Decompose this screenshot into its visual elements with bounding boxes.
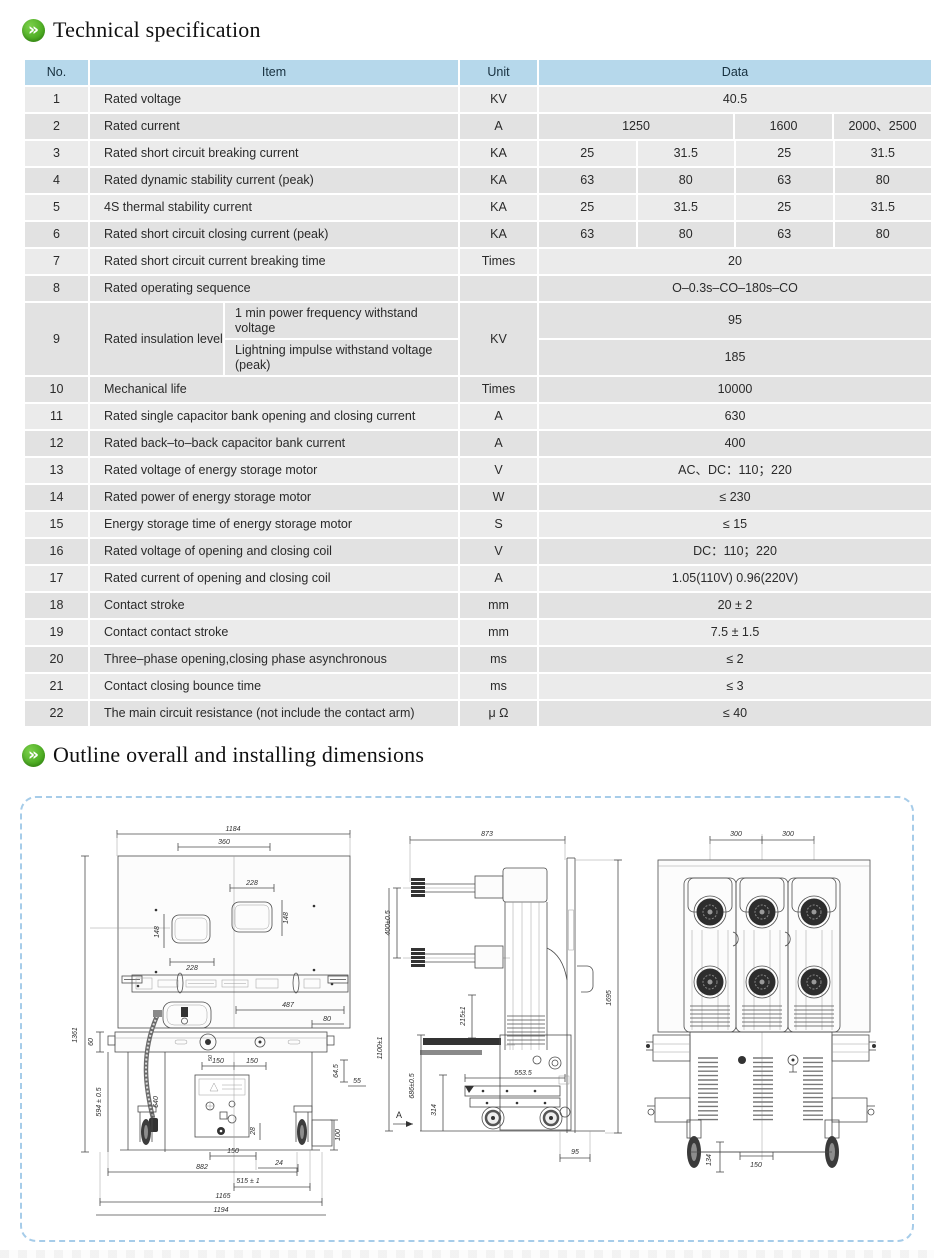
cell-unit: KV bbox=[460, 303, 537, 375]
cell-unit: KA bbox=[460, 141, 537, 166]
dimension-label: 150 bbox=[246, 1058, 258, 1065]
cell-data: AC、DC：110；220 bbox=[539, 458, 931, 483]
rear-view-drawing: 300 300 bbox=[645, 820, 934, 1175]
cell-item: Rated current of opening and closing coi… bbox=[90, 566, 458, 591]
dimension-label: 1695 bbox=[606, 990, 613, 1006]
ventilation-slats bbox=[698, 1058, 823, 1120]
dimension-label: 24 bbox=[274, 1160, 283, 1167]
dimension-label: 148 bbox=[283, 912, 290, 924]
cell-data: 25 bbox=[539, 195, 636, 220]
cell-data: 80 bbox=[835, 168, 932, 193]
dimension-label: 360 bbox=[218, 839, 230, 846]
cell-no: 18 bbox=[25, 593, 88, 618]
cell-no: 19 bbox=[25, 620, 88, 645]
cell-no: 6 bbox=[25, 222, 88, 247]
dimension-label: 300 bbox=[782, 831, 794, 838]
dimension-label: 215±1 bbox=[460, 1006, 467, 1027]
cell-unit: Times bbox=[460, 249, 537, 274]
cell-data: 80 bbox=[835, 222, 932, 247]
cell-data: ≤ 230 bbox=[539, 485, 931, 510]
cell-data: 31.5 bbox=[638, 195, 735, 220]
cell-item: Energy storage time of energy storage mo… bbox=[90, 512, 458, 537]
dimension-label: 150 bbox=[750, 1162, 762, 1169]
double-chevron-icon: » bbox=[22, 744, 45, 767]
dimension-label: 28 bbox=[250, 1127, 257, 1136]
cell-data: 1250 bbox=[539, 114, 733, 139]
cell-item: Rated dynamic stability current (peak) bbox=[90, 168, 458, 193]
cell-data: 25 bbox=[539, 141, 636, 166]
cell-no: 16 bbox=[25, 539, 88, 564]
cell-unit: V bbox=[460, 458, 537, 483]
cell-unit: S bbox=[460, 512, 537, 537]
dimension-label: 148 bbox=[154, 926, 161, 938]
cell-data: 20 bbox=[539, 249, 931, 274]
table-row: 5 4S thermal stability current KA 25 31.… bbox=[25, 195, 931, 220]
cell-data: 630 bbox=[539, 404, 931, 429]
dimension-label: 95 bbox=[571, 1149, 579, 1156]
cell-unit: Times bbox=[460, 377, 537, 402]
dimension-label: 1361 bbox=[72, 1027, 79, 1043]
cell-item: Rated single capacitor bank opening and … bbox=[90, 404, 458, 429]
cell-data: 31.5 bbox=[835, 141, 932, 166]
dimension-label: 873 bbox=[481, 831, 493, 838]
col-header-item: Item bbox=[90, 60, 458, 85]
cell-unit: A bbox=[460, 566, 537, 591]
cell-data: O–0.3s–CO–180s–CO bbox=[539, 276, 931, 301]
cell-no: 12 bbox=[25, 431, 88, 456]
dimension-label: 64.5 bbox=[333, 1064, 340, 1078]
table-row: 4 Rated dynamic stability current (peak)… bbox=[25, 168, 931, 193]
cell-data: 25 bbox=[736, 195, 833, 220]
table-row: 8 Rated operating sequence O–0.3s–CO–180… bbox=[25, 276, 931, 301]
cell-unit: KA bbox=[460, 195, 537, 220]
cell-item: The main circuit resistance (not include… bbox=[90, 701, 458, 726]
cell-no: 7 bbox=[25, 249, 88, 274]
dimension-label: 228 bbox=[245, 880, 258, 887]
dimension-label: 1194 bbox=[213, 1207, 228, 1214]
cell-sub-item: Lightning impulse withstand voltage (pea… bbox=[225, 340, 458, 375]
cell-no: 2 bbox=[25, 114, 88, 139]
dimension-label: 553.5 bbox=[514, 1070, 532, 1077]
cell-unit: W bbox=[460, 485, 537, 510]
dimension-label: 100 bbox=[335, 1129, 342, 1141]
dimension-label: 1184 bbox=[225, 826, 240, 833]
table-row-insulation-level: 9 Rated insulation level 1 min power fre… bbox=[25, 303, 931, 375]
cell-data: 63 bbox=[736, 222, 833, 247]
cell-data: ≤ 15 bbox=[539, 512, 931, 537]
dimension-label: 686±0.5 bbox=[409, 1073, 416, 1098]
cell-no: 3 bbox=[25, 141, 88, 166]
cell-unit: ms bbox=[460, 647, 537, 672]
cell-item: Rated insulation level bbox=[90, 303, 223, 375]
cell-item: Contact stroke bbox=[90, 593, 458, 618]
front-view-drawing: 1184 360 228 148 148 228 487 80 bbox=[60, 820, 370, 1217]
table-row: 10 Mechanical life Times 10000 bbox=[25, 377, 931, 402]
table-row: 16 Rated voltage of opening and closing … bbox=[25, 539, 931, 564]
cell-no: 10 bbox=[25, 377, 88, 402]
cell-unit: μ Ω bbox=[460, 701, 537, 726]
cell-data: 31.5 bbox=[638, 141, 735, 166]
page-title: Technical specification bbox=[53, 17, 261, 43]
dimension-label: 314 bbox=[431, 1104, 438, 1116]
cell-data: 1600 bbox=[735, 114, 832, 139]
table-row: 13 Rated voltage of energy storage motor… bbox=[25, 458, 931, 483]
cell-no: 20 bbox=[25, 647, 88, 672]
cell-no: 1 bbox=[25, 87, 88, 112]
cell-item: Three–phase opening,closing phase asynch… bbox=[90, 647, 458, 672]
cell-item: Rated voltage of opening and closing coi… bbox=[90, 539, 458, 564]
cell-unit: A bbox=[460, 431, 537, 456]
cell-item: Rated back–to–back capacitor bank curren… bbox=[90, 431, 458, 456]
cell-unit: mm bbox=[460, 620, 537, 645]
col-header-unit: Unit bbox=[460, 60, 537, 85]
table-row: 6 Rated short circuit closing current (p… bbox=[25, 222, 931, 247]
cell-data: 95 bbox=[539, 303, 931, 338]
cell-item: Rated voltage of energy storage motor bbox=[90, 458, 458, 483]
cell-no: 21 bbox=[25, 674, 88, 699]
cell-item: Contact contact stroke bbox=[90, 620, 458, 645]
cell-data: ≤ 40 bbox=[539, 701, 931, 726]
cell-data: 80 bbox=[638, 168, 735, 193]
spec-table: No. Item Unit Data 1 Rated voltage KV 40… bbox=[25, 60, 931, 728]
table-row: 7 Rated short circuit current breaking t… bbox=[25, 249, 931, 274]
cell-no: 9 bbox=[25, 303, 88, 375]
table-row: 17 Rated current of opening and closing … bbox=[25, 566, 931, 591]
cell-no: 17 bbox=[25, 566, 88, 591]
cell-unit: mm bbox=[460, 593, 537, 618]
cell-data: 63 bbox=[539, 168, 636, 193]
dimension-label: 150 bbox=[227, 1148, 239, 1155]
table-header-row: No. Item Unit Data bbox=[25, 60, 931, 85]
cell-sub-item: 1 min power frequency withstand voltage bbox=[225, 303, 458, 338]
cell-no: 8 bbox=[25, 276, 88, 301]
cell-data: 20 ± 2 bbox=[539, 593, 931, 618]
dimension-label: 487 bbox=[282, 1002, 295, 1009]
dimension-label: 80 bbox=[323, 1016, 331, 1023]
dimension-label: 882 bbox=[196, 1164, 208, 1171]
cell-item: 4S thermal stability current bbox=[90, 195, 458, 220]
col-header-no: No. bbox=[25, 60, 88, 85]
cell-item: Rated short circuit current breaking tim… bbox=[90, 249, 458, 274]
table-row: 2 Rated current A 1250 1600 2000、2500 bbox=[25, 114, 931, 139]
cell-data: 10000 bbox=[539, 377, 931, 402]
cell-data: 63 bbox=[736, 168, 833, 193]
table-row: 21 Contact closing bounce time ms ≤ 3 bbox=[25, 674, 931, 699]
table-row: 14 Rated power of energy storage motor W… bbox=[25, 485, 931, 510]
section-heading-outline-dimensions: » Outline overall and installing dimensi… bbox=[22, 742, 424, 768]
table-row: 19 Contact contact stroke mm 7.5 ± 1.5 bbox=[25, 620, 931, 645]
cell-unit: A bbox=[460, 114, 537, 139]
cell-data: 31.5 bbox=[835, 195, 932, 220]
dimension-label: 515 ± 1 bbox=[236, 1178, 259, 1185]
section-title: Outline overall and installing dimension… bbox=[53, 742, 424, 768]
cell-data: 7.5 ± 1.5 bbox=[539, 620, 931, 645]
cell-unit: V bbox=[460, 539, 537, 564]
dimension-label: 60 bbox=[88, 1038, 95, 1046]
cell-no: 14 bbox=[25, 485, 88, 510]
cell-no: 22 bbox=[25, 701, 88, 726]
cell-data: 40.5 bbox=[539, 87, 931, 112]
next-section-edge bbox=[0, 1250, 934, 1258]
cell-unit: KA bbox=[460, 168, 537, 193]
cell-no: 4 bbox=[25, 168, 88, 193]
cell-data: DC：110；220 bbox=[539, 539, 931, 564]
dimension-label: 228 bbox=[185, 965, 198, 972]
cell-item: Contact closing bounce time bbox=[90, 674, 458, 699]
table-row: 15 Energy storage time of energy storage… bbox=[25, 512, 931, 537]
cell-data: 25 bbox=[736, 141, 833, 166]
table-row: 22 The main circuit resistance (not incl… bbox=[25, 701, 931, 726]
cell-data: ≤ 3 bbox=[539, 674, 931, 699]
cell-item: Mechanical life bbox=[90, 377, 458, 402]
cell-item: Rated short circuit closing current (pea… bbox=[90, 222, 458, 247]
section-heading-technical-specification: » Technical specification bbox=[22, 17, 261, 43]
table-row: 11 Rated single capacitor bank opening a… bbox=[25, 404, 931, 429]
cell-no: 15 bbox=[25, 512, 88, 537]
section-arrow-label: A bbox=[396, 1110, 402, 1120]
cell-unit: KA bbox=[460, 222, 537, 247]
cell-no: 13 bbox=[25, 458, 88, 483]
table-row: 18 Contact stroke mm 20 ± 2 bbox=[25, 593, 931, 618]
table-row: 12 Rated back–to–back capacitor bank cur… bbox=[25, 431, 931, 456]
dimension-label: 300 bbox=[730, 831, 742, 838]
cell-item: Rated operating sequence bbox=[90, 276, 458, 301]
cell-unit: A bbox=[460, 404, 537, 429]
cell-data: 400 bbox=[539, 431, 931, 456]
cell-data: 2000、2500 bbox=[834, 114, 931, 139]
cell-data: 80 bbox=[638, 222, 735, 247]
cell-no: 5 bbox=[25, 195, 88, 220]
dimension-label: 55 bbox=[353, 1078, 361, 1085]
cell-data: 1.05(110V) 0.96(220V) bbox=[539, 566, 931, 591]
cell-item: Rated voltage bbox=[90, 87, 458, 112]
dimension-label: 1165 bbox=[215, 1193, 230, 1200]
cell-no: 11 bbox=[25, 404, 88, 429]
cell-data: 63 bbox=[539, 222, 636, 247]
dimension-label: 1100±1 bbox=[377, 1037, 384, 1060]
dimension-label: 134 bbox=[706, 1154, 713, 1166]
double-chevron-icon: » bbox=[22, 19, 45, 42]
table-row: 1 Rated voltage KV 40.5 bbox=[25, 87, 931, 112]
catalog-page: » Technical specification No. Item Unit … bbox=[0, 0, 934, 1258]
cell-unit: ms bbox=[460, 674, 537, 699]
side-view-drawing: 873 1695 400±0.5 215±1 bbox=[375, 820, 660, 1165]
cell-data: 185 bbox=[539, 340, 931, 375]
col-header-data: Data bbox=[539, 60, 931, 85]
cell-item: Rated short circuit breaking current bbox=[90, 141, 458, 166]
dimension-label: 400±0.5 bbox=[385, 910, 392, 935]
cell-unit bbox=[460, 276, 537, 301]
table-row: 3 Rated short circuit breaking current K… bbox=[25, 141, 931, 166]
cell-item: Rated power of energy storage motor bbox=[90, 485, 458, 510]
dimension-label: 50 bbox=[208, 1054, 214, 1061]
dimension-label: 594 ± 0.5 bbox=[96, 1087, 103, 1116]
cell-data: ≤ 2 bbox=[539, 647, 931, 672]
table-row: 20 Three–phase opening,closing phase asy… bbox=[25, 647, 931, 672]
cell-item: Rated current bbox=[90, 114, 458, 139]
cell-unit: KV bbox=[460, 87, 537, 112]
